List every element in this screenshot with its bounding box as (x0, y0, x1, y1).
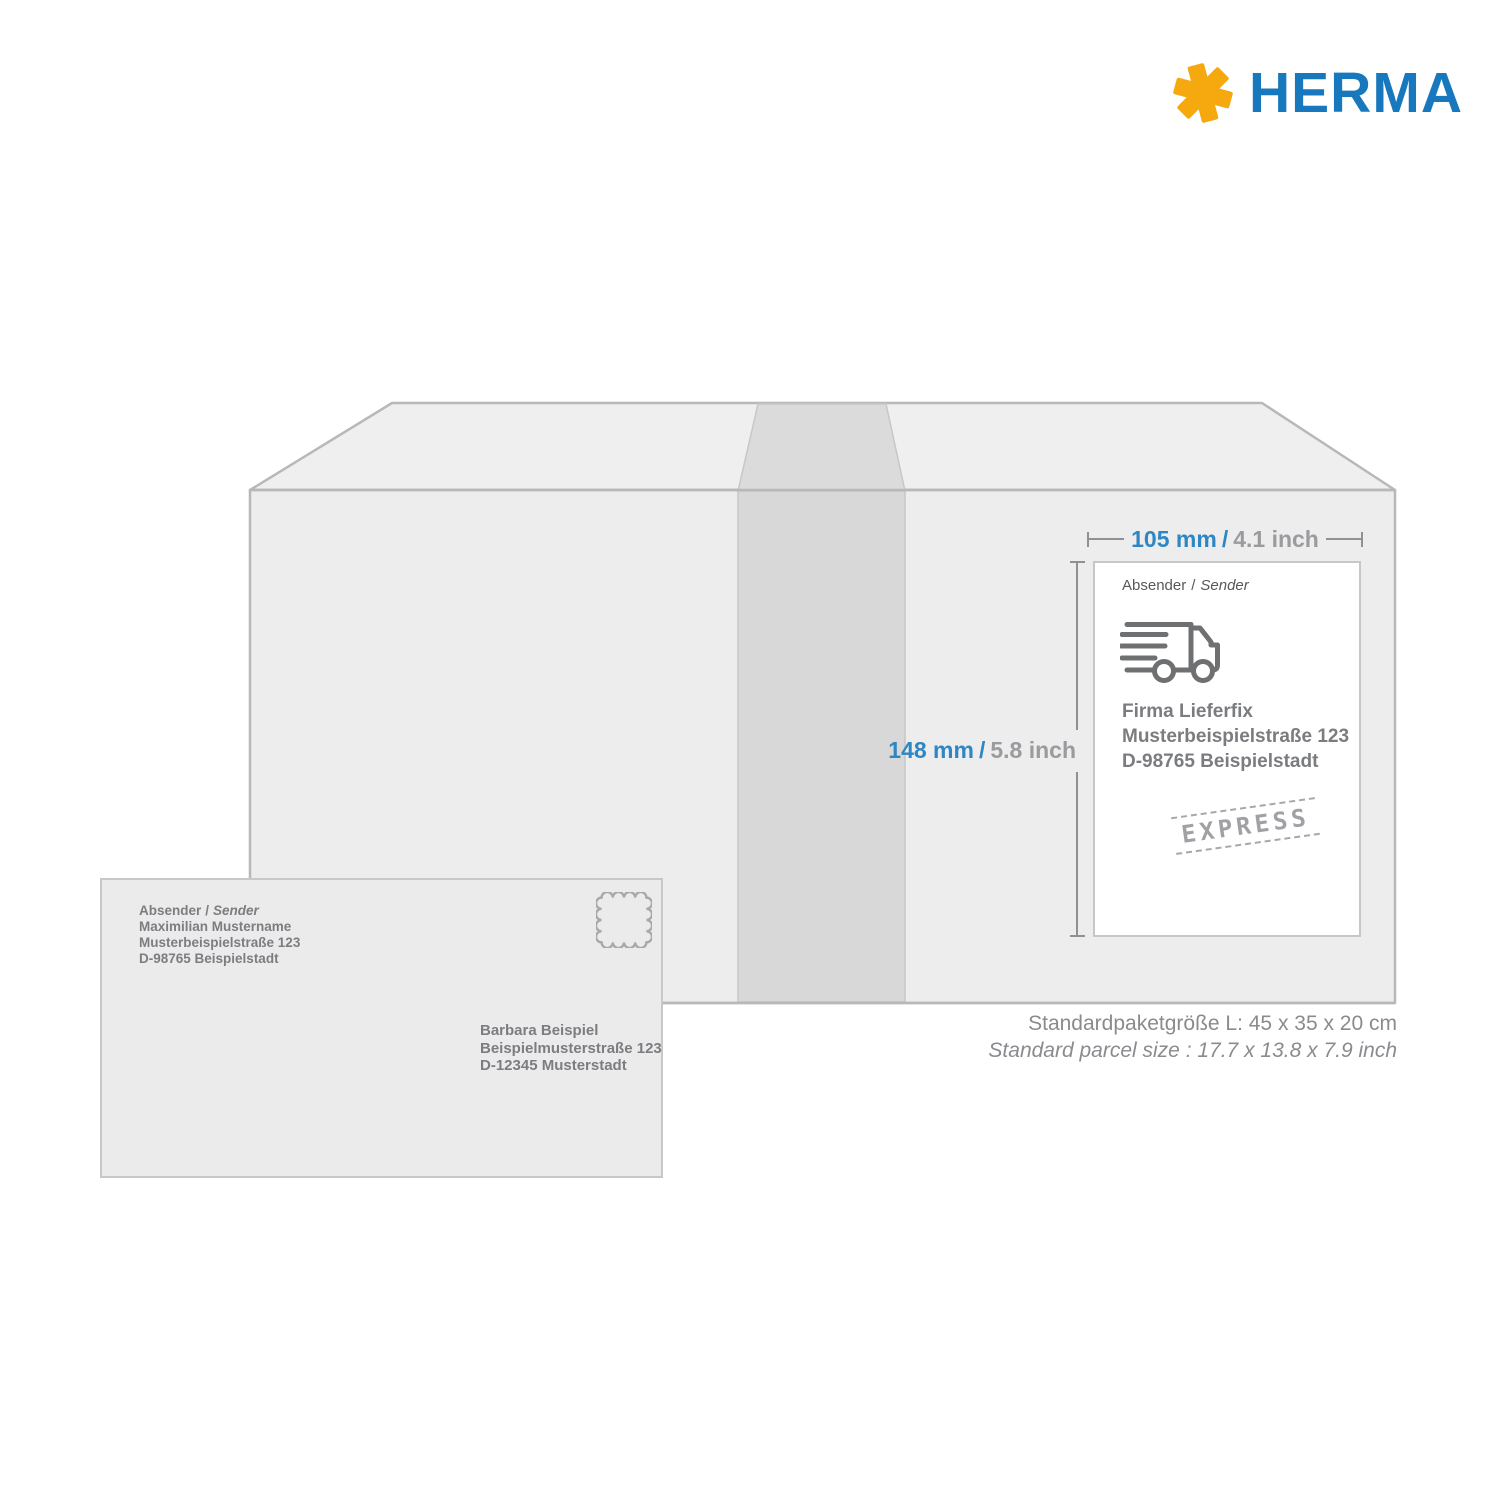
width-dimension: 105 mm/4.1 inch (1087, 524, 1363, 554)
envelope-recipient-block: Barbara Beispiel Beispielmusterstraße 12… (480, 1022, 662, 1075)
envelope-sender-line: Maximilian Mustername (139, 919, 300, 935)
label-heading-de: Absender (1122, 577, 1186, 594)
herma-logo: HERMA (1172, 60, 1463, 126)
dimension-tick-bottom (1070, 935, 1085, 937)
delivery-truck-icon (1120, 621, 1224, 683)
label-address-line: Firma Lieferfix (1122, 699, 1349, 724)
dimension-line-upper (1076, 563, 1078, 730)
envelope-sender-block: Absender/Sender Maximilian Mustername Mu… (139, 903, 300, 967)
shipping-label: Absender/Sender Firma Lieferfix Musterbe… (1093, 561, 1361, 937)
width-metric: 105 mm (1131, 526, 1217, 552)
herma-wordmark: HERMA (1249, 65, 1463, 122)
envelope-recipient-line: Beispielmusterstraße 123 (480, 1040, 662, 1058)
label-address: Firma Lieferfix Musterbeispielstraße 123… (1122, 699, 1349, 774)
box-tape-top (738, 404, 905, 491)
width-imperial: 4.1 inch (1233, 526, 1319, 552)
label-address-line: Musterbeispielstraße 123 (1122, 724, 1349, 749)
height-separator: / (979, 737, 985, 763)
parcel-size-imperial: Standard parcel size : 17.7 x 13.8 x 7.9… (988, 1037, 1397, 1064)
dimension-tick-right (1361, 532, 1363, 547)
width-dimension-label: 105 mm/4.1 inch (1131, 526, 1319, 553)
envelope-heading-separator: / (205, 903, 209, 918)
label-sender-heading: Absender/Sender (1122, 577, 1249, 594)
postage-stamp-icon (596, 892, 652, 948)
envelope-sender-line: D-98765 Beispielstadt (139, 951, 300, 967)
label-heading-separator: / (1191, 577, 1195, 594)
envelope-sender-line: Musterbeispielstraße 123 (139, 935, 300, 951)
herma-asterisk-icon (1172, 60, 1234, 126)
width-separator: / (1222, 526, 1228, 552)
envelope-recipient-line: D-12345 Musterstadt (480, 1057, 662, 1075)
parcel-size-info: Standardpaketgröße L: 45 x 35 x 20 cm St… (988, 1010, 1397, 1064)
height-metric: 148 mm (888, 737, 974, 763)
envelope-heading-de: Absender (139, 903, 201, 918)
dimension-line-lower (1076, 772, 1078, 935)
label-address-line: D-98765 Beispielstadt (1122, 749, 1349, 774)
envelope-heading-en: Sender (213, 903, 259, 918)
envelope: Absender/Sender Maximilian Mustername Mu… (100, 878, 663, 1178)
envelope-recipient-line: Barbara Beispiel (480, 1022, 662, 1040)
height-imperial: 5.8 inch (990, 737, 1076, 763)
product-illustration: HERMA 105 mm/4.1 inch 148 mm/5.8 inch Ab… (0, 0, 1500, 1500)
dimension-line (1089, 538, 1124, 540)
label-heading-en: Sender (1200, 577, 1248, 594)
parcel-size-metric: Standardpaketgröße L: 45 x 35 x 20 cm (988, 1010, 1397, 1037)
envelope-sender-heading: Absender/Sender (139, 903, 300, 919)
express-stamp: EXPRESS (1171, 797, 1320, 855)
height-dimension-label: 148 mm/5.8 inch (850, 737, 1076, 764)
dimension-line (1326, 538, 1361, 540)
